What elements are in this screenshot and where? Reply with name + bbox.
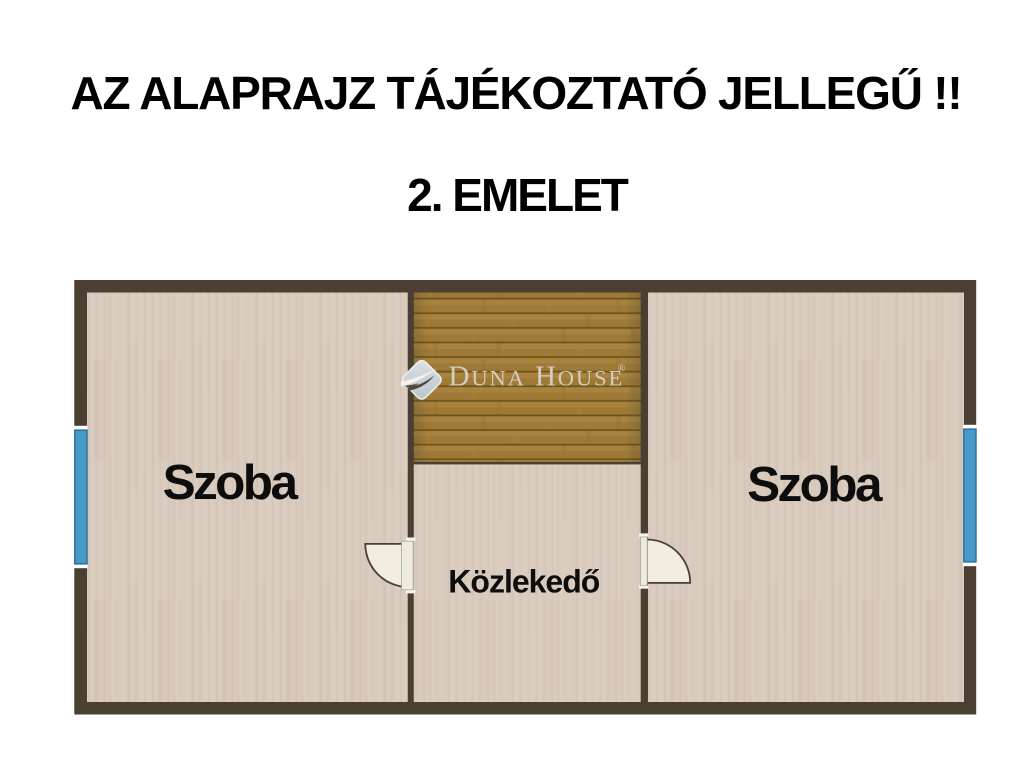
svg-text:®: ® [618,364,626,375]
svg-text:AZ ALAPRAJZ TÁJÉKOZTATÓ JELLEG: AZ ALAPRAJZ TÁJÉKOZTATÓ JELLEGŰ !! [70,67,961,119]
svg-text:Szoba: Szoba [163,455,299,510]
svg-text:Szoba: Szoba [747,457,883,512]
svg-text:Közlekedő: Közlekedő [448,563,599,599]
svg-text:2. EMELET: 2. EMELET [407,169,629,221]
svg-text:DUNA HOUSE: DUNA HOUSE [449,361,625,393]
